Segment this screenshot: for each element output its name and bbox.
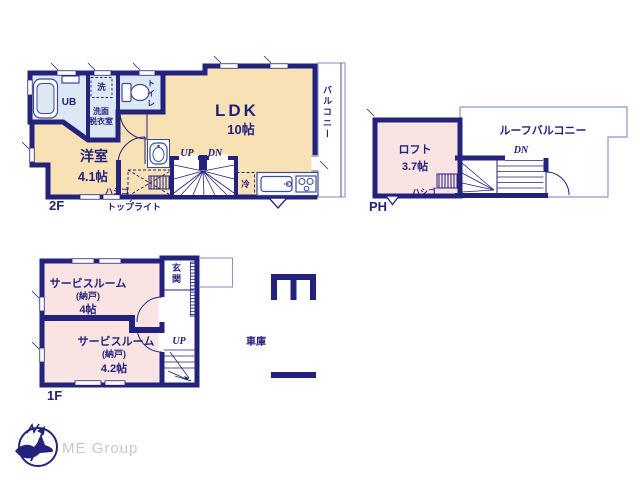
vent-triangle-2f	[269, 198, 287, 208]
label-fridge: 冷	[241, 179, 250, 189]
label-ladder-ph: ハシゴ	[412, 187, 436, 197]
stairs-ph	[455, 156, 569, 199]
floor-label-ph: PH	[369, 199, 387, 214]
floor-label-1f: 1F	[47, 388, 62, 403]
balcony-door-gap	[312, 155, 319, 172]
label-loft: ロフト	[399, 143, 432, 156]
label-roof-balcony: ルーフバルコニー	[499, 124, 586, 137]
label-entrance: 玄関	[171, 262, 181, 285]
label-balcony: バルコニー	[322, 85, 332, 140]
label-ladder-2f: ハシゴ	[105, 186, 129, 196]
label-ldk-size: 10帖	[227, 122, 254, 137]
compass-logo	[15, 424, 57, 466]
label-ldk: LDK	[215, 101, 259, 120]
entrance-door-hatch	[191, 262, 197, 316]
roof-balcony-outline	[460, 107, 627, 197]
label-washroom-2: 脱衣室	[89, 116, 113, 126]
stove-icon	[296, 176, 316, 192]
floor-label-2f: 2F	[49, 198, 64, 213]
label-up-1f: UP	[172, 336, 186, 347]
label-dn-2f: DN	[207, 148, 223, 159]
stairs-1f	[164, 350, 195, 381]
label-service2: サービスルーム	[78, 334, 155, 348]
label-service1-tag: (納戸)	[76, 290, 100, 301]
toilet-tank-icon	[122, 84, 131, 102]
label-service2-size: 4.2帖	[101, 361, 127, 375]
label-skylight: トップライト	[107, 201, 161, 212]
label-service1-size: 4帖	[79, 302, 96, 316]
label-toilet: トイレ	[147, 79, 156, 109]
label-service1: サービスルーム	[50, 276, 127, 290]
floor-ph: ロフト 3.7帖 ルーフバルコニー DN ハシゴ PH	[367, 107, 627, 214]
floor-1f: サービスルーム (納戸) 4帖 サービスルーム (納戸) 4.2帖 玄関 UP …	[32, 256, 233, 404]
label-garage: 車庫	[246, 335, 266, 348]
label-western-room: 洋室	[80, 148, 108, 164]
label-western-room-size: 4.1帖	[78, 169, 108, 184]
garage-marks: 車庫	[246, 274, 316, 378]
label-washroom-1: 洗面	[93, 106, 109, 116]
label-dn-ph: DN	[513, 145, 529, 156]
label-loft-size: 3.7帖	[402, 159, 428, 173]
label-up-2f: UP	[180, 148, 194, 159]
door-ph-balcony	[546, 172, 569, 195]
bath-counter-icon	[62, 76, 79, 83]
brand-text: ME Group	[62, 440, 138, 457]
stairs-2f	[172, 155, 236, 198]
label-service2-tag: (納戸)	[102, 348, 126, 359]
vent-triangle-ph	[386, 196, 399, 205]
porch	[200, 258, 233, 287]
brand-footer: ME Group	[15, 424, 138, 466]
label-ub: UB	[62, 97, 76, 108]
label-washer: 洗	[97, 82, 106, 92]
floor-plan: LDK 10帖 洋室 4.1帖 UB 洗 洗面 脱衣室 トイレ バルコニー UP…	[0, 0, 640, 480]
ladder-mark-ph	[437, 174, 461, 188]
floor-2f: LDK 10帖 洋室 4.1帖 UB 洗 洗面 脱衣室 トイレ バルコニー UP…	[22, 56, 345, 213]
